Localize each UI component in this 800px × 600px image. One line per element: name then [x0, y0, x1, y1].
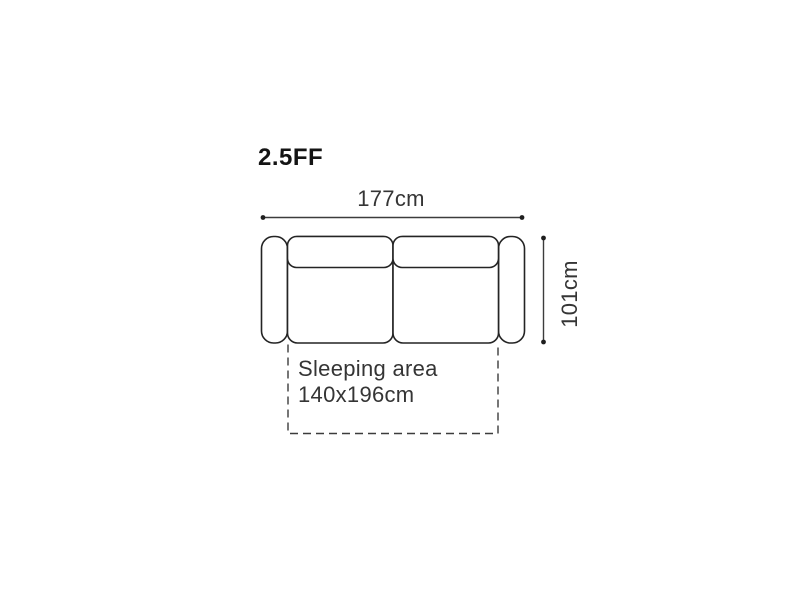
right-armrest — [499, 237, 525, 344]
height-dimension-line — [541, 236, 546, 345]
width-dimension-label: 177cm — [357, 186, 425, 211]
width-dimension-dot-right — [520, 215, 525, 220]
height-dimension-label: 101cm — [557, 260, 582, 328]
back-cushion-right — [393, 237, 499, 268]
model-title: 2.5FF — [258, 144, 323, 171]
sofa-dimension-diagram: 2.5FF 177cm 101cm Sleeping — [0, 0, 800, 600]
diagram-svg: 2.5FF 177cm 101cm Sleeping — [0, 0, 800, 600]
sleeping-area-label: Sleeping area — [298, 356, 438, 381]
back-cushion-left — [288, 237, 394, 268]
sleeping-area-size: 140x196cm — [298, 382, 414, 407]
sofa-outline — [262, 237, 525, 344]
width-dimension-dot-left — [261, 215, 266, 220]
left-armrest — [262, 237, 288, 344]
width-dimension-line — [261, 215, 525, 220]
height-dimension-dot-bottom — [541, 340, 546, 345]
height-dimension-dot-top — [541, 236, 546, 241]
